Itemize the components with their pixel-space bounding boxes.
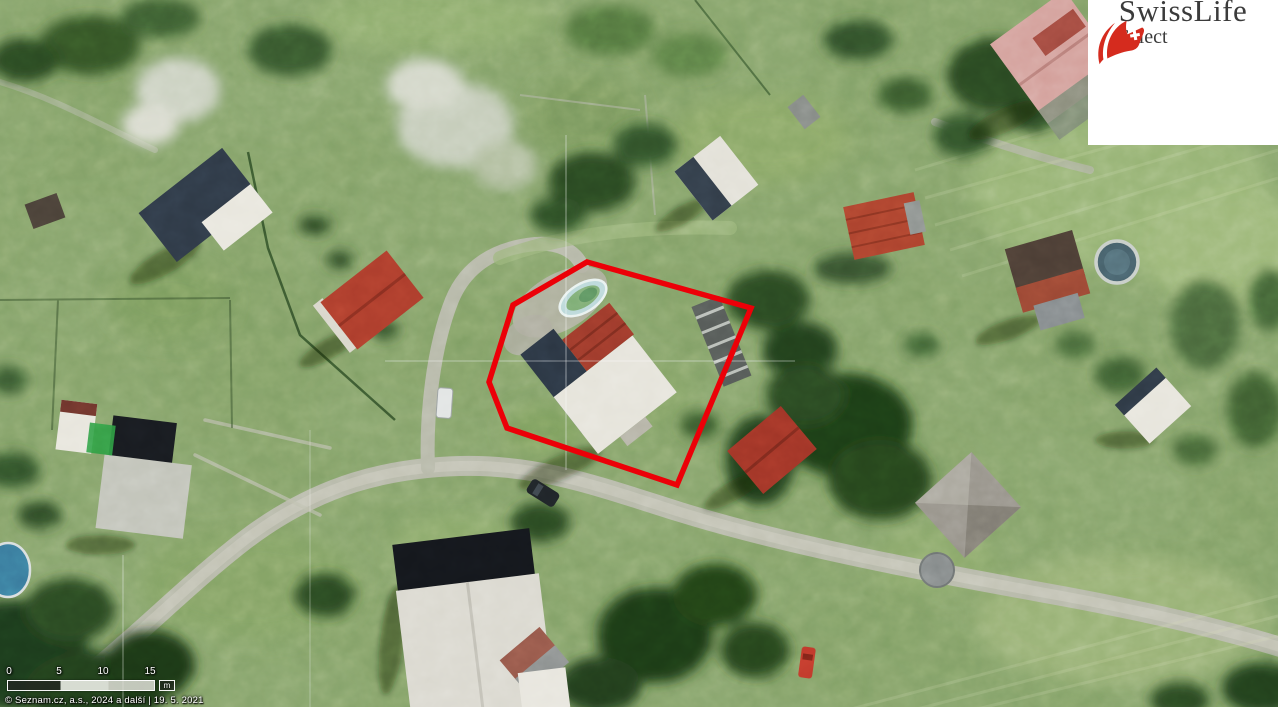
screenshot-root: SwissLife Select 0 5 10 15 m © Seznam.cz… (0, 0, 1278, 707)
scale-bar-segments (7, 680, 155, 691)
map-attribution: © Seznam.cz, a.s., 2024 a další | 19. 5.… (5, 695, 204, 706)
swisslife-logo: SwissLife Select (1088, 0, 1278, 145)
swisslife-flag-icon (1088, 14, 1146, 72)
scale-label-0: 0 (6, 666, 12, 677)
photo-grain (0, 0, 1278, 707)
scale-label-1: 5 (56, 666, 62, 677)
scale-label-3: 15 (144, 666, 155, 677)
scale-unit: m (159, 680, 175, 691)
aerial-map (0, 0, 1278, 707)
map-scale-bar: 0 5 10 15 m (6, 666, 181, 694)
scale-label-2: 10 (97, 666, 108, 677)
